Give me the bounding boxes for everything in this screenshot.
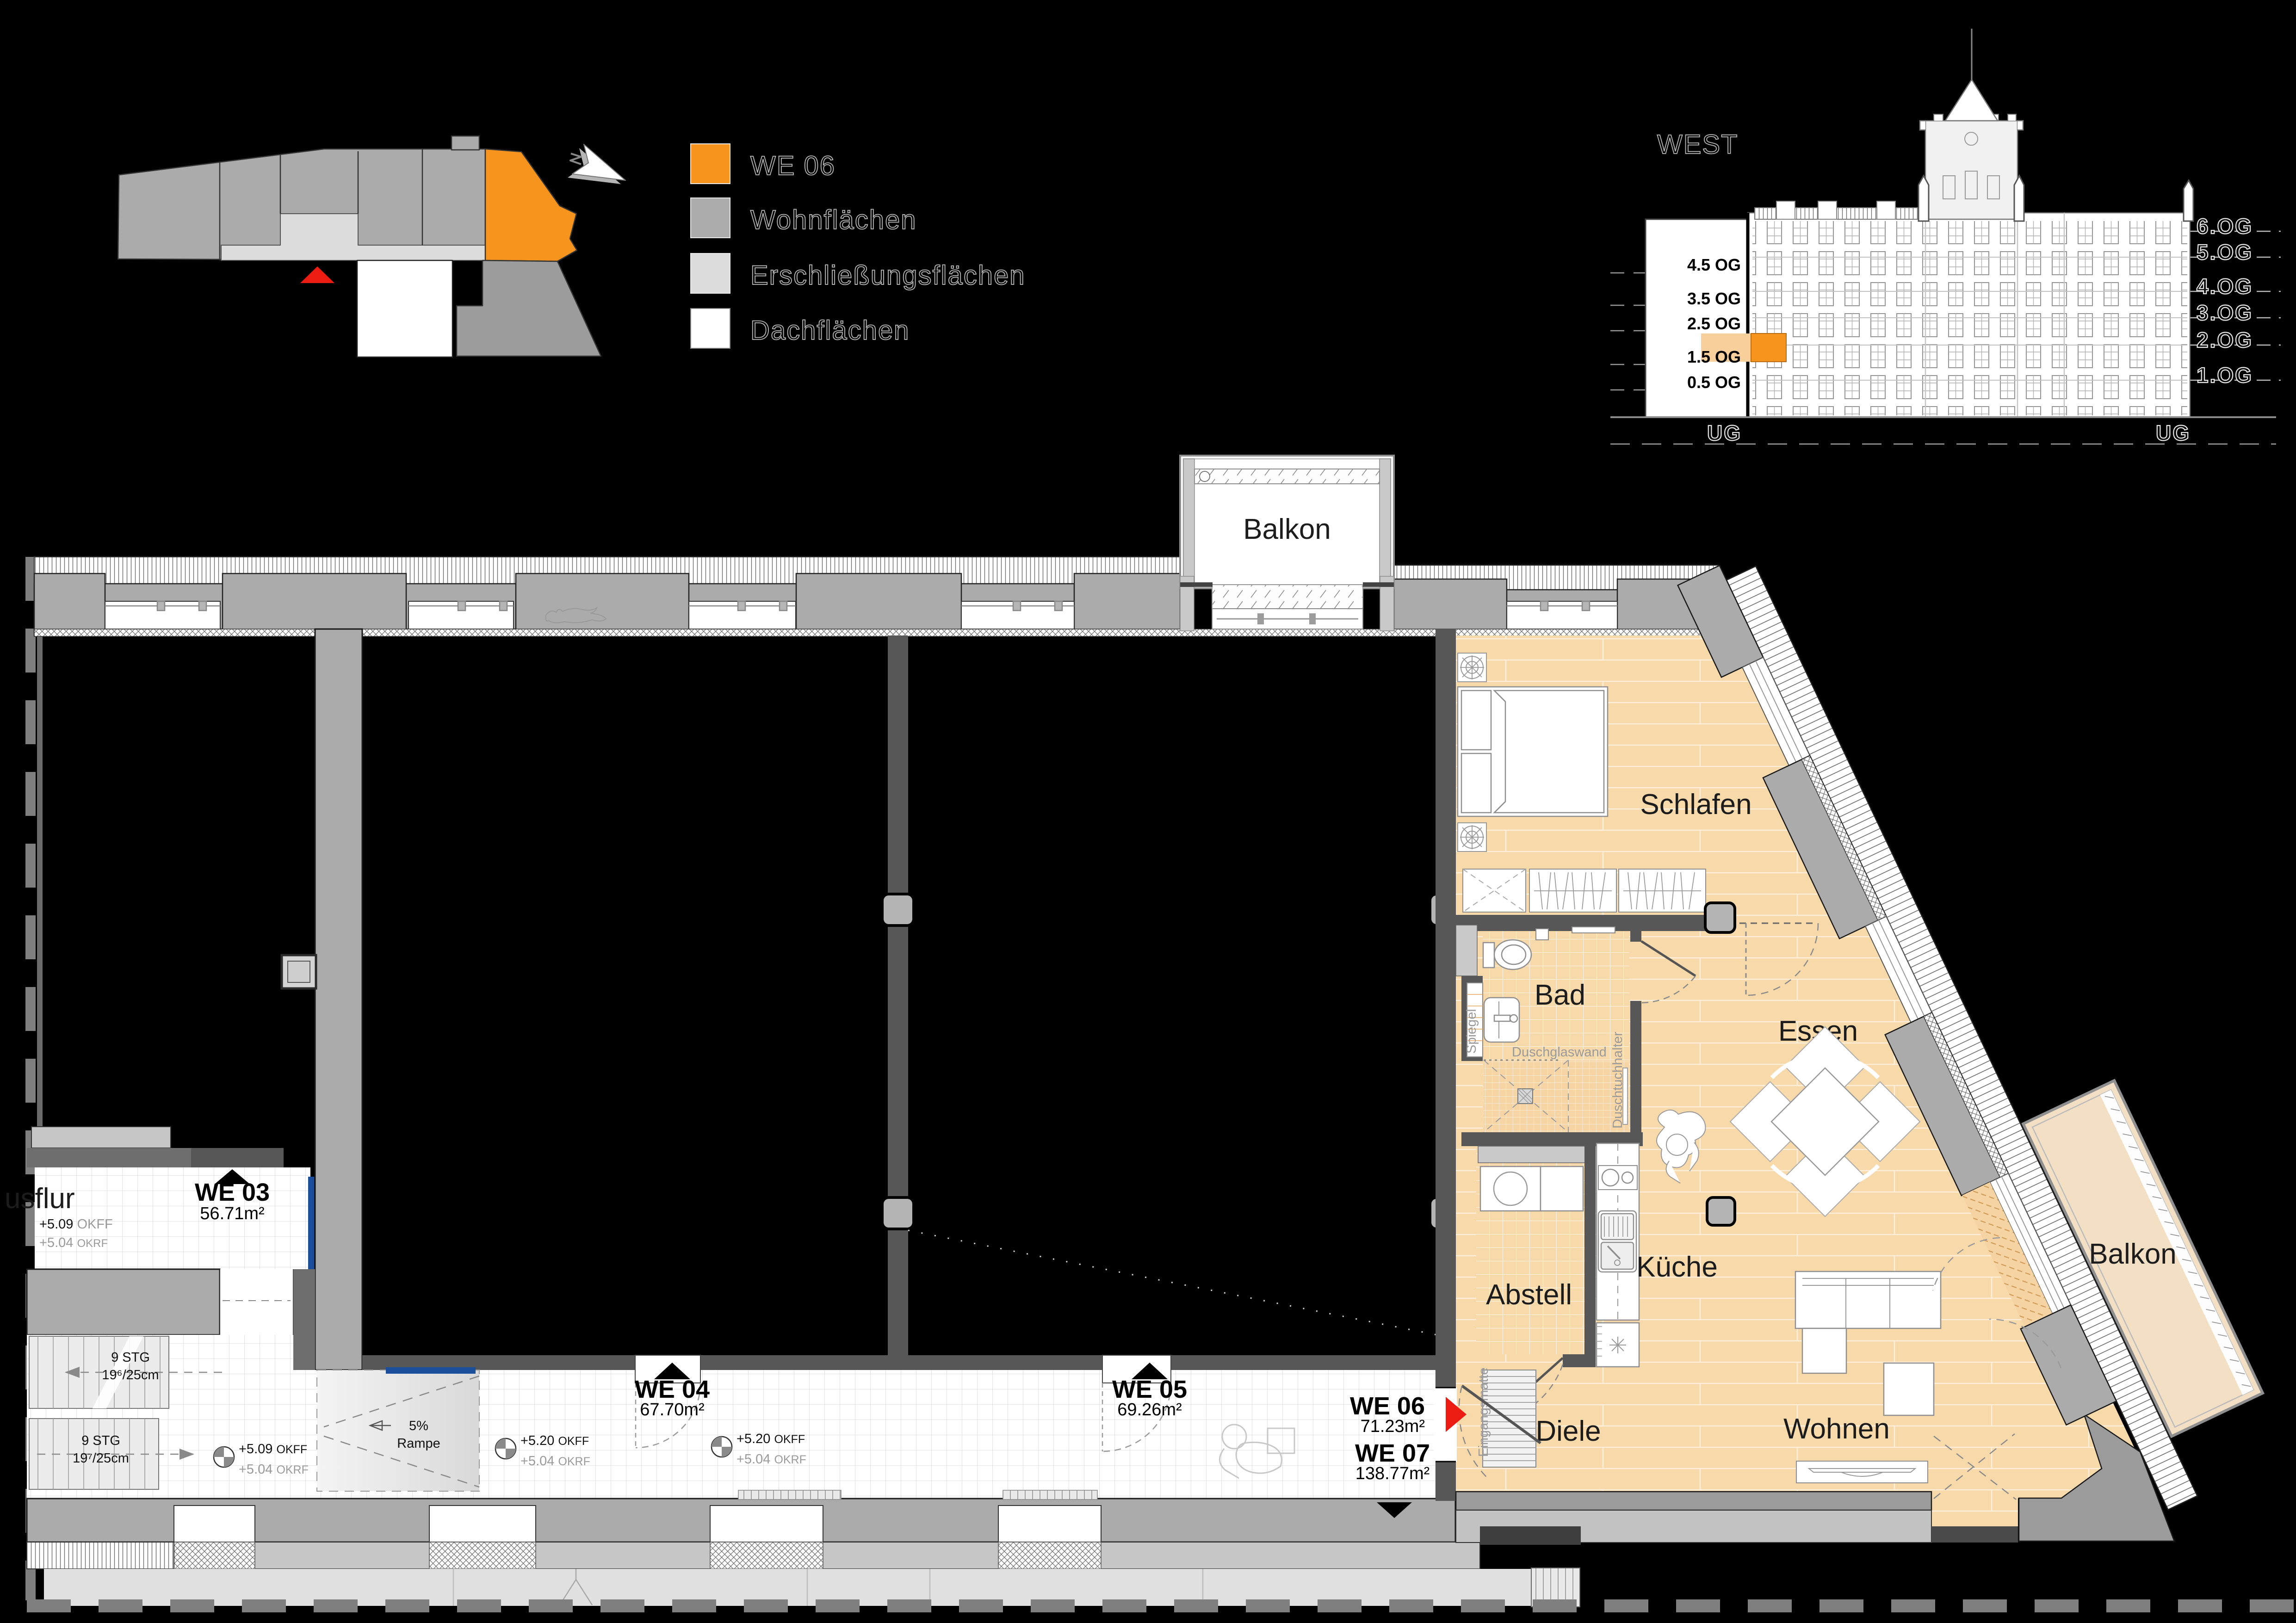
svg-text:138.77m²: 138.77m² — [1355, 1464, 1430, 1483]
svg-text:3.5 OG: 3.5 OG — [1687, 289, 1741, 308]
svg-text:Balkon: Balkon — [1243, 513, 1331, 545]
svg-text:Wohnflächen: Wohnflächen — [750, 205, 917, 235]
svg-text:1.OG: 1.OG — [2197, 363, 2253, 387]
svg-text:WE 05: WE 05 — [1112, 1376, 1187, 1403]
svg-text:Duschglaswand: Duschglaswand — [1512, 1045, 1607, 1060]
svg-text:+5.20 OKFF: +5.20 OKFF — [736, 1432, 805, 1446]
svg-text:67.70m²: 67.70m² — [640, 1400, 704, 1419]
svg-text:WE 06: WE 06 — [1350, 1392, 1425, 1420]
svg-text:+5.09 OKFF: +5.09 OKFF — [239, 1442, 307, 1456]
svg-text:Spiegel: Spiegel — [1464, 1009, 1479, 1054]
svg-text:3.OG: 3.OG — [2197, 301, 2253, 325]
svg-text:5.OG: 5.OG — [2197, 240, 2253, 264]
svg-text:+5.09 OKFF: +5.09 OKFF — [39, 1217, 113, 1232]
svg-text:WEST: WEST — [1657, 130, 1739, 160]
svg-text:UG: UG — [2156, 421, 2191, 445]
svg-text:71.23m²: 71.23m² — [1361, 1417, 1425, 1436]
svg-text:WE 07: WE 07 — [1355, 1439, 1430, 1467]
svg-text:Abstell: Abstell — [1486, 1279, 1572, 1311]
svg-text:5%: 5% — [409, 1419, 428, 1433]
svg-text:Dachflächen: Dachflächen — [750, 315, 910, 346]
svg-text:56.71m²: 56.71m² — [200, 1204, 264, 1223]
svg-text:Eingangsmatte: Eingangsmatte — [1476, 1368, 1491, 1457]
svg-text:1.5 OG: 1.5 OG — [1687, 347, 1741, 366]
svg-text:Duschtuchhalter: Duschtuchhalter — [1610, 1031, 1625, 1129]
svg-text:Schlafen: Schlafen — [1640, 789, 1751, 821]
svg-text:+5.04 OKRF: +5.04 OKRF — [39, 1235, 108, 1250]
svg-text:6.OG: 6.OG — [2197, 214, 2253, 238]
svg-text:Wohnen: Wohnen — [1783, 1413, 1890, 1445]
svg-text:4.5 OG: 4.5 OG — [1687, 255, 1741, 274]
svg-text:+5.04 OKRF: +5.04 OKRF — [239, 1462, 309, 1477]
svg-text:0.5 OG: 0.5 OG — [1687, 373, 1741, 392]
svg-text:usflur: usflur — [5, 1183, 75, 1215]
svg-text:Küche: Küche — [1636, 1251, 1718, 1283]
svg-text:2.OG: 2.OG — [2197, 328, 2253, 352]
svg-text:+5.20 OKFF: +5.20 OKFF — [520, 1433, 589, 1448]
svg-text:Bad: Bad — [1535, 979, 1585, 1011]
svg-text:69.26m²: 69.26m² — [1117, 1400, 1182, 1419]
svg-text:Erschließungsflächen: Erschließungsflächen — [750, 260, 1026, 290]
svg-text:+5.04 OKRF: +5.04 OKRF — [520, 1454, 590, 1469]
svg-text:WE 04: WE 04 — [635, 1376, 710, 1403]
svg-text:19⁷/25cm: 19⁷/25cm — [73, 1451, 129, 1466]
svg-text:2.5 OG: 2.5 OG — [1687, 314, 1741, 333]
svg-text:WE 03: WE 03 — [195, 1179, 270, 1206]
svg-text:9 STG: 9 STG — [81, 1433, 120, 1448]
svg-text:UG: UG — [1707, 421, 1742, 445]
svg-text:4.OG: 4.OG — [2197, 274, 2253, 298]
svg-text:Balkon: Balkon — [2089, 1238, 2177, 1270]
svg-text:9 STG: 9 STG — [111, 1350, 150, 1365]
svg-text:19⁶/25cm: 19⁶/25cm — [102, 1368, 159, 1382]
svg-text:WE 06: WE 06 — [750, 151, 835, 181]
svg-text:Rampe: Rampe — [397, 1436, 440, 1451]
svg-text:+5.04 OKRF: +5.04 OKRF — [736, 1452, 806, 1467]
svg-text:Diele: Diele — [1535, 1415, 1601, 1447]
